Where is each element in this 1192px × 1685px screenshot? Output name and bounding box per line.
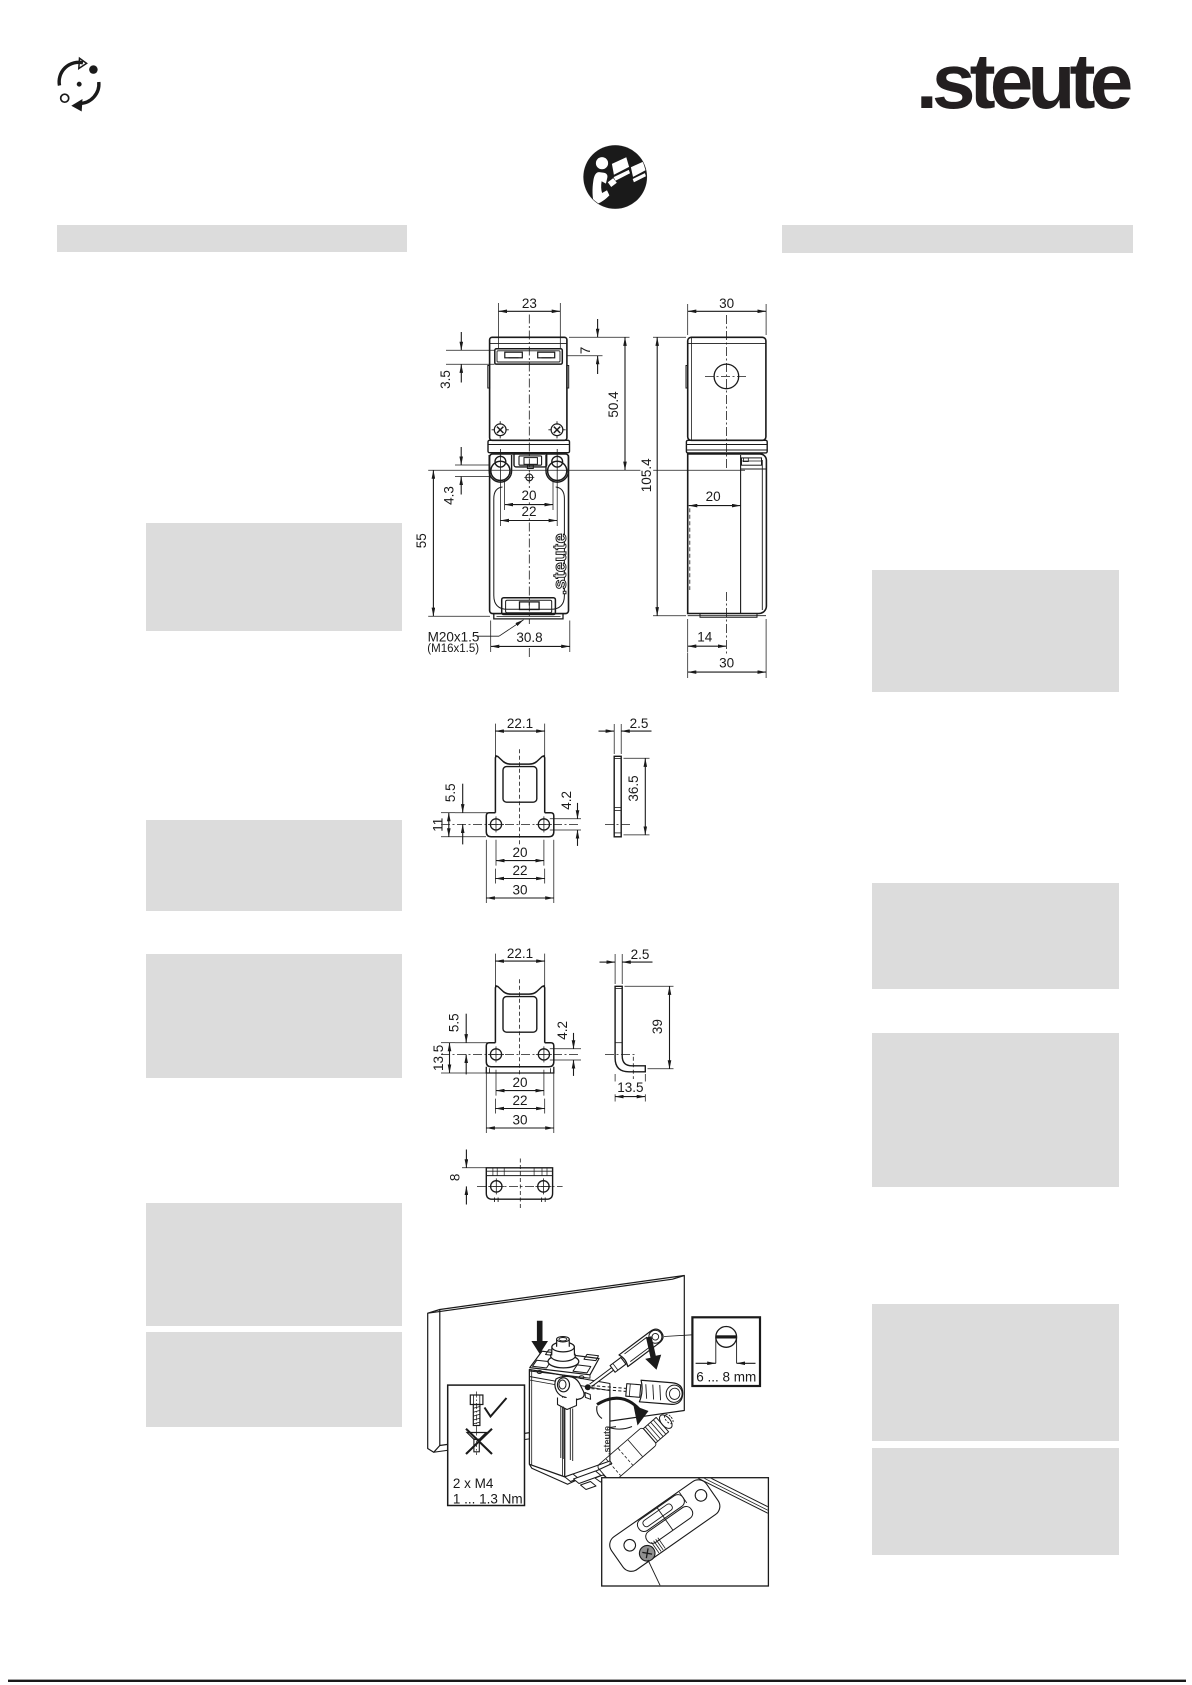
svg-text:3.5: 3.5 <box>438 370 453 389</box>
svg-text:36.5: 36.5 <box>626 775 641 801</box>
svg-text:30: 30 <box>719 296 734 311</box>
svg-text:22: 22 <box>512 863 527 878</box>
svg-text:30.8: 30.8 <box>516 630 542 645</box>
svg-text:23: 23 <box>522 296 537 311</box>
svg-text:50.4: 50.4 <box>606 391 621 418</box>
svg-text:39: 39 <box>650 1019 665 1034</box>
svg-text:30: 30 <box>512 1113 527 1128</box>
svg-text:105.4: 105.4 <box>639 458 654 492</box>
svg-text:4.2: 4.2 <box>555 1021 570 1040</box>
svg-text:1 ... 1.3 Nm: 1 ... 1.3 Nm <box>453 1492 523 1507</box>
svg-text:6 ... 8 mm: 6 ... 8 mm <box>696 1369 756 1384</box>
svg-text:30: 30 <box>719 655 734 670</box>
svg-text:7: 7 <box>578 347 593 355</box>
svg-text:2 x M4: 2 x M4 <box>453 1476 494 1491</box>
svg-text:22.1: 22.1 <box>507 946 533 961</box>
svg-text:13.5: 13.5 <box>617 1080 643 1095</box>
svg-text:11: 11 <box>430 818 445 832</box>
svg-text:5.5: 5.5 <box>443 783 458 802</box>
svg-text:.steute: .steute <box>602 1426 612 1455</box>
svg-text:.steute: .steute <box>550 533 570 595</box>
svg-text:(M16x1.5): (M16x1.5) <box>427 643 479 655</box>
svg-text:20: 20 <box>512 845 527 860</box>
svg-text:14: 14 <box>697 630 713 645</box>
svg-text:13.5: 13.5 <box>431 1045 446 1071</box>
svg-text:30: 30 <box>512 883 527 898</box>
svg-text:2.5: 2.5 <box>631 947 650 962</box>
svg-text:22.1: 22.1 <box>507 716 533 731</box>
svg-text:20: 20 <box>706 489 721 504</box>
svg-text:20: 20 <box>521 488 536 503</box>
svg-text:2.5: 2.5 <box>630 716 649 731</box>
svg-text:4.2: 4.2 <box>559 791 574 810</box>
svg-text:20: 20 <box>512 1075 527 1090</box>
svg-text:22: 22 <box>521 504 536 519</box>
svg-text:4.3: 4.3 <box>442 486 457 505</box>
svg-text:55: 55 <box>414 533 429 548</box>
svg-text:5.5: 5.5 <box>447 1013 462 1032</box>
svg-text:22: 22 <box>512 1093 527 1108</box>
svg-text:8: 8 <box>448 1174 463 1182</box>
